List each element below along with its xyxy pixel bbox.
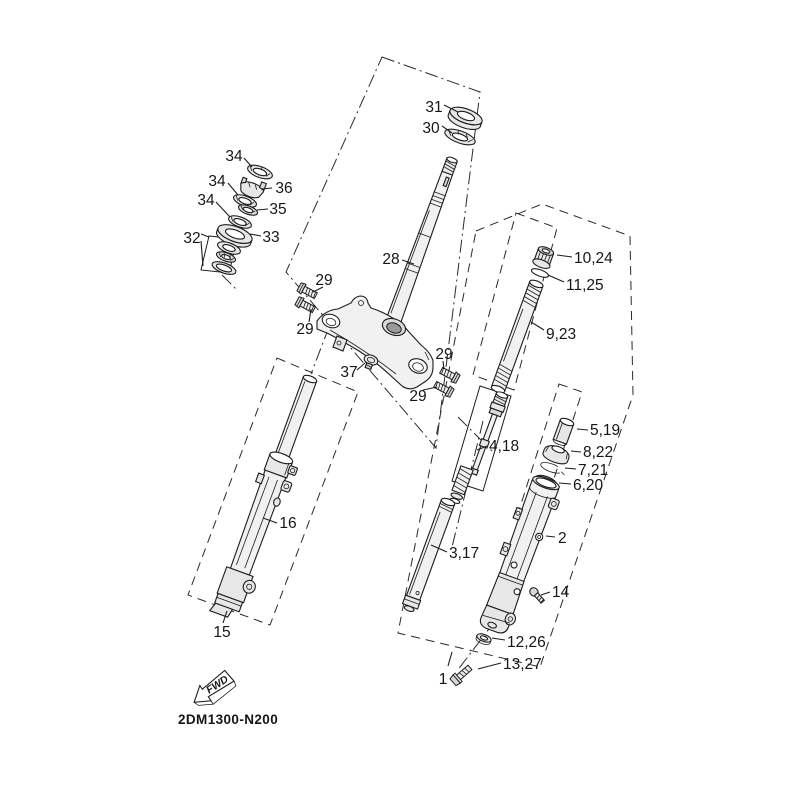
boundary-segment bbox=[222, 275, 237, 290]
callout-6-20: 6,20 bbox=[573, 477, 604, 494]
callout-34a: 34 bbox=[225, 148, 243, 165]
callout-36: 36 bbox=[275, 180, 292, 197]
callout-34b: 34 bbox=[208, 173, 226, 190]
left-fork-leg-16 bbox=[209, 371, 330, 623]
callout-29a: 29 bbox=[315, 272, 332, 289]
exploded-parts-diagram: FWD 31 30 bbox=[0, 0, 800, 800]
pinch-bolt-29b bbox=[294, 296, 316, 315]
left-fork-axis bbox=[311, 327, 329, 374]
callout-1: 1 bbox=[439, 671, 448, 688]
callout-33: 33 bbox=[262, 229, 279, 246]
callout-3-17: 3,17 bbox=[449, 545, 479, 562]
callout-8-22: 8,22 bbox=[583, 444, 613, 461]
fwd-arrow: FWD bbox=[188, 669, 238, 713]
rebound-spring bbox=[448, 466, 473, 505]
drawing-number: 2DM1300-N200 bbox=[178, 712, 278, 727]
steering-stem-28 bbox=[387, 155, 460, 322]
callout-37: 37 bbox=[340, 364, 357, 381]
callout-16: 16 bbox=[279, 515, 296, 532]
callout-28: 28 bbox=[382, 251, 399, 268]
callout-2: 2 bbox=[558, 530, 567, 547]
callout-9-23: 9,23 bbox=[546, 326, 576, 343]
callout-5-19: 5,19 bbox=[590, 422, 620, 439]
spacer-5-19 bbox=[552, 417, 574, 447]
parts-diagram-page: FWD 31 30 bbox=[0, 0, 800, 800]
under-bracket bbox=[317, 296, 433, 389]
callout-12-26: 12,26 bbox=[507, 634, 546, 651]
callout-30: 30 bbox=[422, 120, 440, 137]
callout-32: 32 bbox=[183, 230, 200, 247]
callout-14: 14 bbox=[552, 584, 570, 601]
damper-rod-4-18 bbox=[467, 390, 510, 476]
callout-15: 15 bbox=[213, 624, 230, 641]
callout-34c: 34 bbox=[197, 192, 215, 209]
callout-11-25: 11,25 bbox=[566, 277, 604, 294]
callout-13-27: 13,27 bbox=[503, 656, 542, 673]
callout-31: 31 bbox=[425, 99, 442, 116]
callout-4-18: 4,18 bbox=[489, 438, 519, 455]
outer-tube-2 bbox=[474, 472, 565, 637]
callout-35: 35 bbox=[269, 201, 286, 218]
callout-29c: 29 bbox=[435, 346, 452, 363]
screw-14 bbox=[528, 586, 546, 604]
callout-29b: 29 bbox=[296, 321, 313, 338]
callout-10-24: 10,24 bbox=[574, 250, 613, 267]
callout-29d: 29 bbox=[409, 388, 426, 405]
bolt-13-27 bbox=[449, 663, 473, 686]
